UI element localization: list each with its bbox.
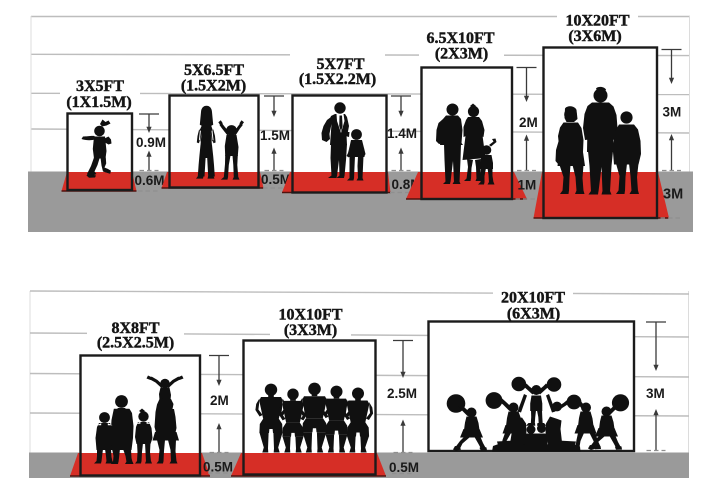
svg-text:0.9M: 0.9M bbox=[136, 135, 166, 150]
svg-text:(1.5X2M): (1.5X2M) bbox=[181, 78, 246, 95]
svg-text:5X6.5FT: 5X6.5FT bbox=[184, 62, 244, 79]
svg-text:3X5FT: 3X5FT bbox=[76, 78, 124, 95]
svg-text:3M: 3M bbox=[663, 105, 682, 120]
svg-text:(6X3M): (6X3M) bbox=[507, 306, 560, 323]
svg-text:(3X3M): (3X3M) bbox=[284, 322, 337, 339]
svg-text:0.5M: 0.5M bbox=[389, 460, 419, 475]
svg-text:(1X1.5M): (1X1.5M) bbox=[66, 94, 131, 111]
svg-text:20X10FT: 20X10FT bbox=[501, 290, 565, 307]
svg-text:0.6M: 0.6M bbox=[135, 173, 165, 188]
svg-text:2.5M: 2.5M bbox=[387, 386, 417, 401]
svg-text:2M: 2M bbox=[210, 393, 229, 408]
svg-text:2M: 2M bbox=[519, 115, 538, 130]
svg-text:1.4M: 1.4M bbox=[387, 126, 417, 141]
svg-text:10X10FT: 10X10FT bbox=[279, 307, 343, 324]
svg-text:(1.5X2.2M): (1.5X2.2M) bbox=[299, 71, 376, 88]
svg-text:3M: 3M bbox=[663, 187, 683, 203]
svg-text:(2.5X2.5M): (2.5X2.5M) bbox=[97, 335, 174, 352]
svg-text:(2X3M): (2X3M) bbox=[435, 46, 488, 63]
svg-text:(3X6M): (3X6M) bbox=[568, 28, 621, 45]
svg-text:1M: 1M bbox=[518, 178, 537, 193]
svg-text:0.5M: 0.5M bbox=[203, 460, 233, 475]
svg-text:3M: 3M bbox=[646, 386, 665, 401]
svg-text:1.5M: 1.5M bbox=[260, 128, 290, 143]
svg-text:6.5X10FT: 6.5X10FT bbox=[427, 30, 495, 47]
svg-text:10X20FT: 10X20FT bbox=[566, 13, 630, 30]
